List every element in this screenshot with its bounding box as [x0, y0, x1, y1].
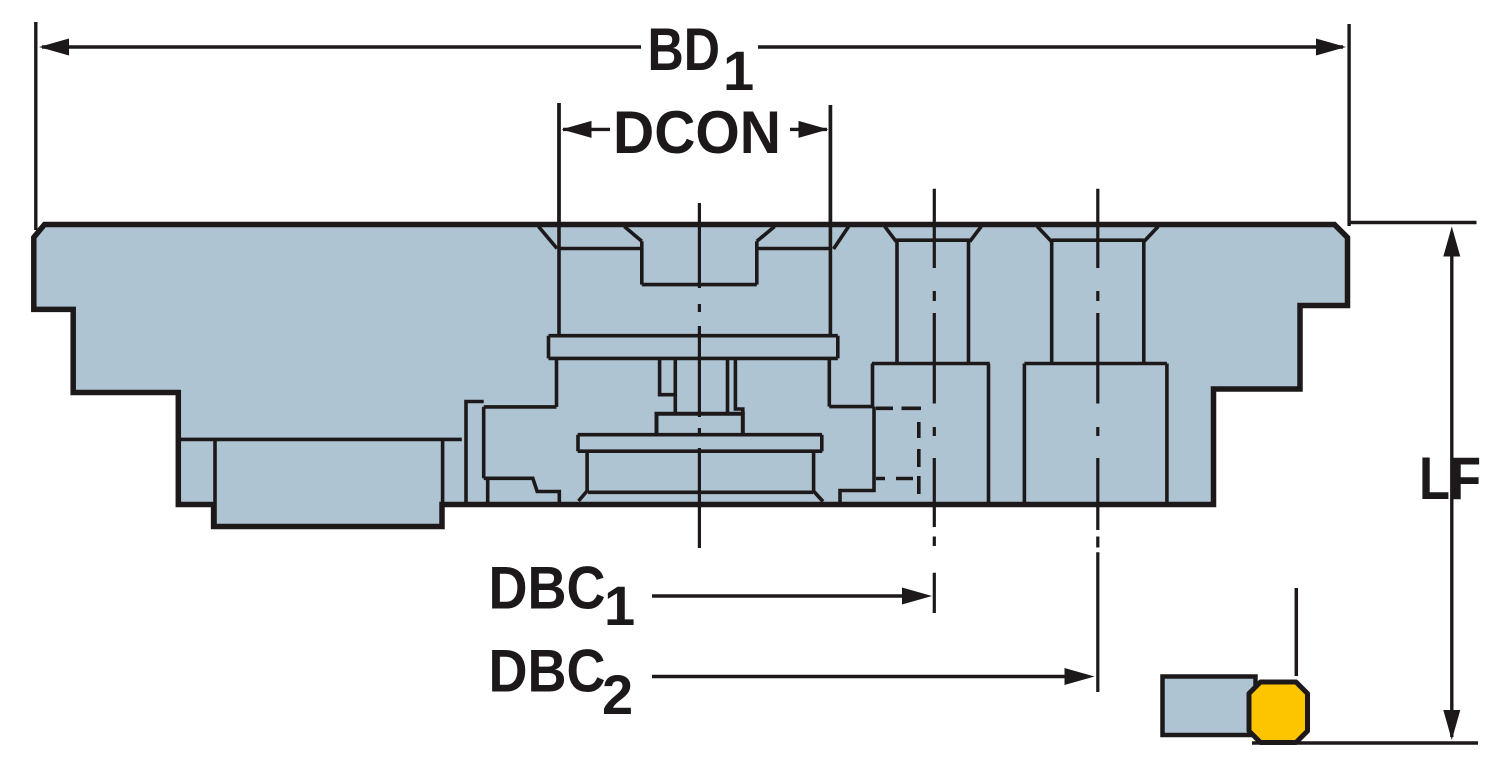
svg-text:DCON: DCON	[613, 99, 781, 166]
svg-text:DBC: DBC	[489, 555, 606, 622]
svg-text:LF: LF	[1419, 445, 1481, 512]
svg-text:BD: BD	[648, 16, 721, 83]
svg-text:DBC: DBC	[489, 638, 606, 705]
svg-text:1: 1	[604, 574, 635, 637]
svg-text:2: 2	[602, 663, 633, 726]
svg-text:1: 1	[723, 39, 754, 102]
